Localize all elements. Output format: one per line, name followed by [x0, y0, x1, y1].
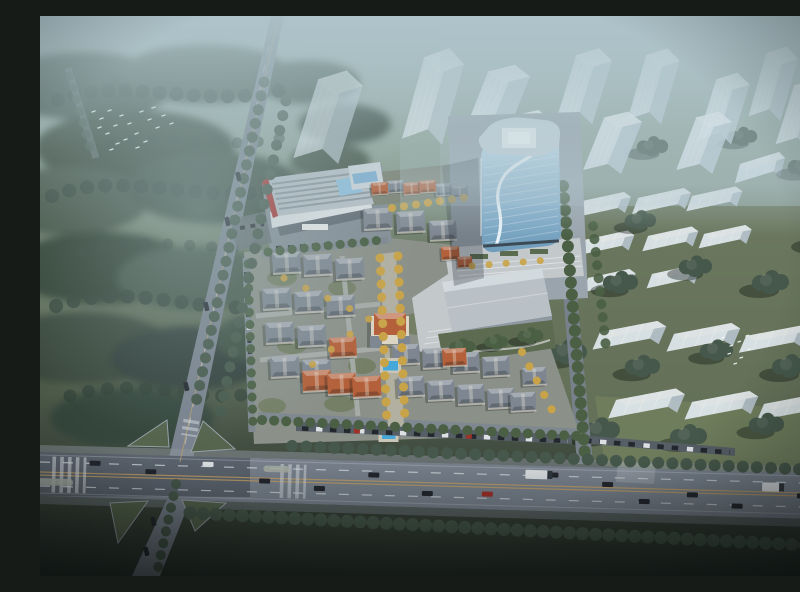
scene-canvas	[40, 16, 800, 576]
vignette	[40, 16, 800, 576]
aerial-rendering: Bird's-eye 3D architectural rendering of…	[40, 16, 800, 576]
